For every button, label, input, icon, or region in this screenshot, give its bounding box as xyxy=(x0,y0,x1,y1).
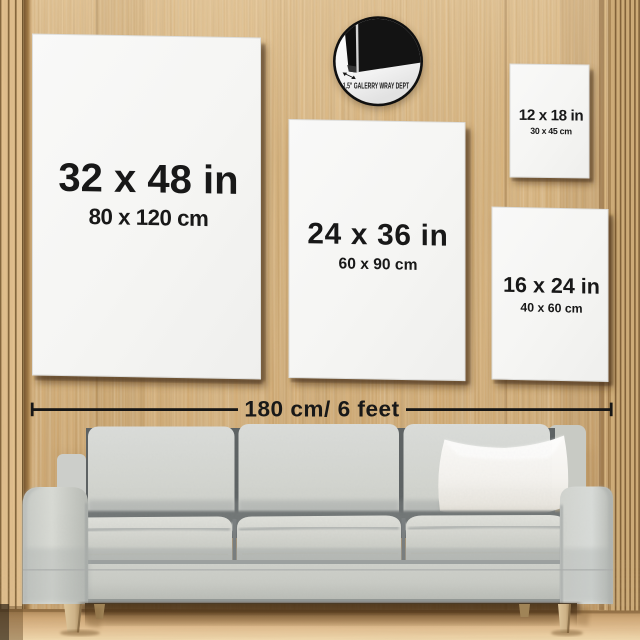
svg-text:60 x 90 cm: 60 x 90 cm xyxy=(339,255,418,273)
svg-text:180 cm/ 6 feet: 180 cm/ 6 feet xyxy=(244,396,399,421)
svg-text:80 x 120 cm: 80 x 120 cm xyxy=(89,204,209,231)
svg-text:1.5" GALERRY WRAY DEPT: 1.5" GALERRY WRAY DEPT xyxy=(343,83,409,91)
svg-text:32 x 48 in: 32 x 48 in xyxy=(58,156,238,203)
svg-text:40 x 60 cm: 40 x 60 cm xyxy=(520,300,582,315)
svg-text:24 x 36 in: 24 x 36 in xyxy=(307,217,448,252)
svg-text:12 x 18 in: 12 x 18 in xyxy=(519,107,584,125)
svg-text:30 x 45 cm: 30 x 45 cm xyxy=(530,126,572,137)
svg-text:16 x 24 in: 16 x 24 in xyxy=(503,273,600,299)
